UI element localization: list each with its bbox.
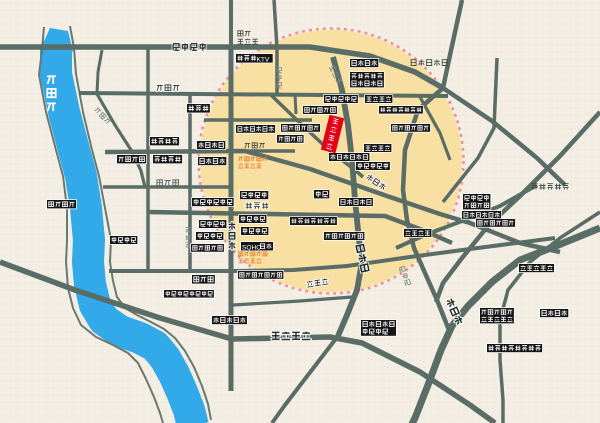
svg-text:KTV: KTV	[257, 56, 270, 63]
svg-text:SOHO: SOHO	[242, 244, 261, 251]
